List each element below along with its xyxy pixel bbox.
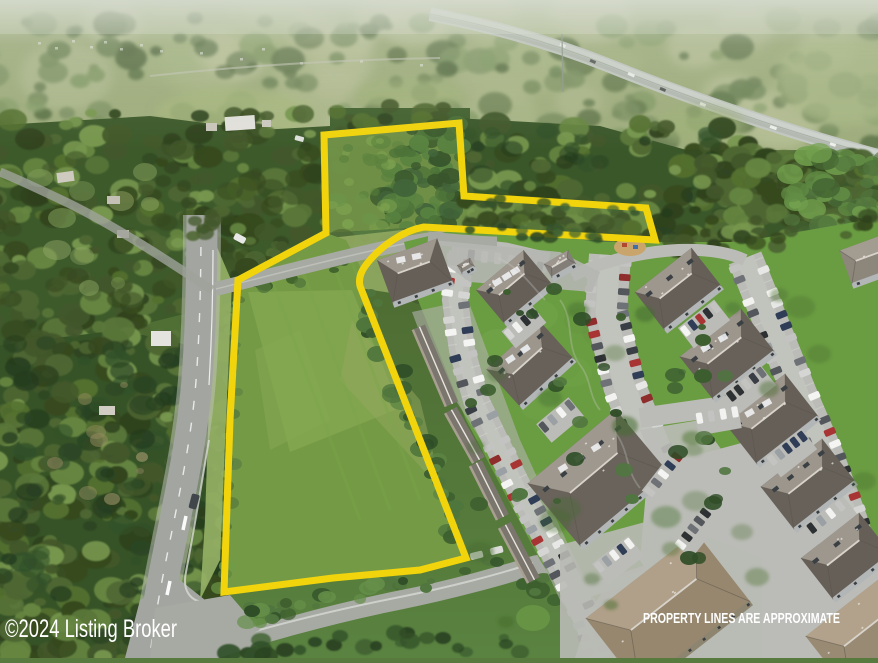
svg-text:©2024 Listing Broker: ©2024 Listing Broker xyxy=(5,615,177,643)
svg-text:PROPERTY LINES ARE APPROXIMATE: PROPERTY LINES ARE APPROXIMATE xyxy=(643,610,840,627)
